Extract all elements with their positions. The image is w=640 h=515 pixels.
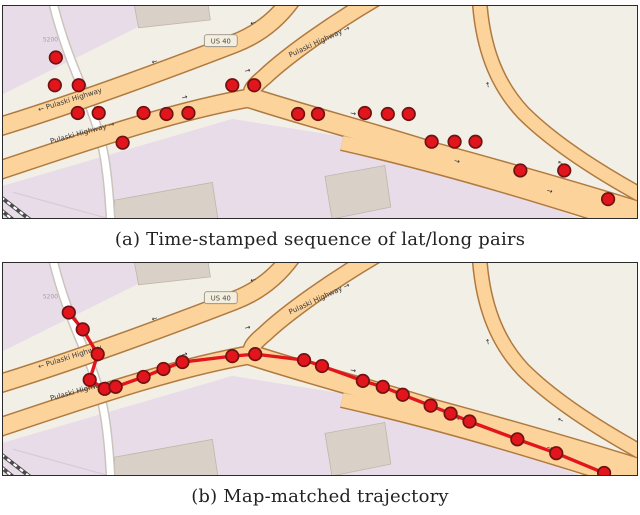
gps-point — [316, 360, 329, 372]
gps-point — [424, 399, 437, 411]
route-shield-us40: US 40 — [204, 35, 237, 47]
map-panel-b: ← ← → → → → → → → 5200 ← Pulaski Highway… — [2, 262, 638, 476]
gps-point — [226, 350, 239, 362]
gps-point — [382, 108, 395, 120]
gps-point — [72, 79, 85, 91]
house-number-label: 5200 — [43, 37, 58, 44]
gps-point — [514, 164, 527, 176]
gps-point — [160, 108, 173, 120]
gps-point — [292, 108, 305, 120]
gps-point — [602, 193, 615, 205]
caption-a: (a) Time-stamped sequence of lat/long pa… — [0, 229, 640, 250]
gps-point — [116, 136, 129, 148]
gps-point — [425, 135, 438, 147]
gps-point — [359, 107, 372, 119]
gps-point — [377, 381, 390, 393]
map-a-canvas: ← ← → → → → → → → 5200 ← Pulaski Highway… — [3, 6, 637, 218]
gps-point — [444, 407, 457, 419]
gps-point — [448, 135, 461, 147]
gps-point — [248, 79, 261, 91]
gps-point — [511, 433, 524, 445]
route-shield-text: US 40 — [211, 38, 231, 46]
gps-point — [176, 356, 189, 368]
gps-point — [91, 348, 104, 360]
gps-point — [92, 107, 105, 119]
gps-point — [558, 164, 571, 176]
gps-point — [50, 51, 63, 63]
gps-point — [550, 447, 563, 459]
gps-point — [396, 389, 409, 401]
gps-point — [71, 107, 84, 119]
gps-point — [182, 107, 195, 119]
gps-point — [298, 354, 311, 366]
house-number-label: 5200 — [43, 294, 58, 301]
route-shield-text: US 40 — [211, 295, 231, 303]
gps-point — [76, 323, 89, 335]
route-shield-us40: US 40 — [204, 292, 237, 304]
gps-point — [83, 374, 96, 386]
map-panel-a: ← ← → → → → → → → 5200 ← Pulaski Highway… — [2, 5, 638, 219]
gps-point — [312, 108, 325, 120]
gps-point — [402, 108, 415, 120]
caption-b: (b) Map-matched trajectory — [0, 486, 640, 507]
gps-point — [49, 79, 62, 91]
gps-point — [63, 306, 76, 318]
gps-point — [463, 415, 476, 427]
gps-point — [109, 381, 122, 393]
gps-point — [249, 348, 262, 360]
gps-point — [226, 79, 239, 91]
map-matching-figure: ← ← → → → → → → → 5200 ← Pulaski Highway… — [0, 0, 640, 515]
gps-point — [157, 363, 170, 375]
gps-point — [137, 107, 150, 119]
gps-point — [469, 135, 482, 147]
gps-point — [137, 371, 150, 383]
map-b-canvas: ← ← → → → → → → → 5200 ← Pulaski Highway… — [3, 263, 637, 475]
gps-point — [598, 467, 611, 475]
gps-point — [357, 375, 370, 387]
